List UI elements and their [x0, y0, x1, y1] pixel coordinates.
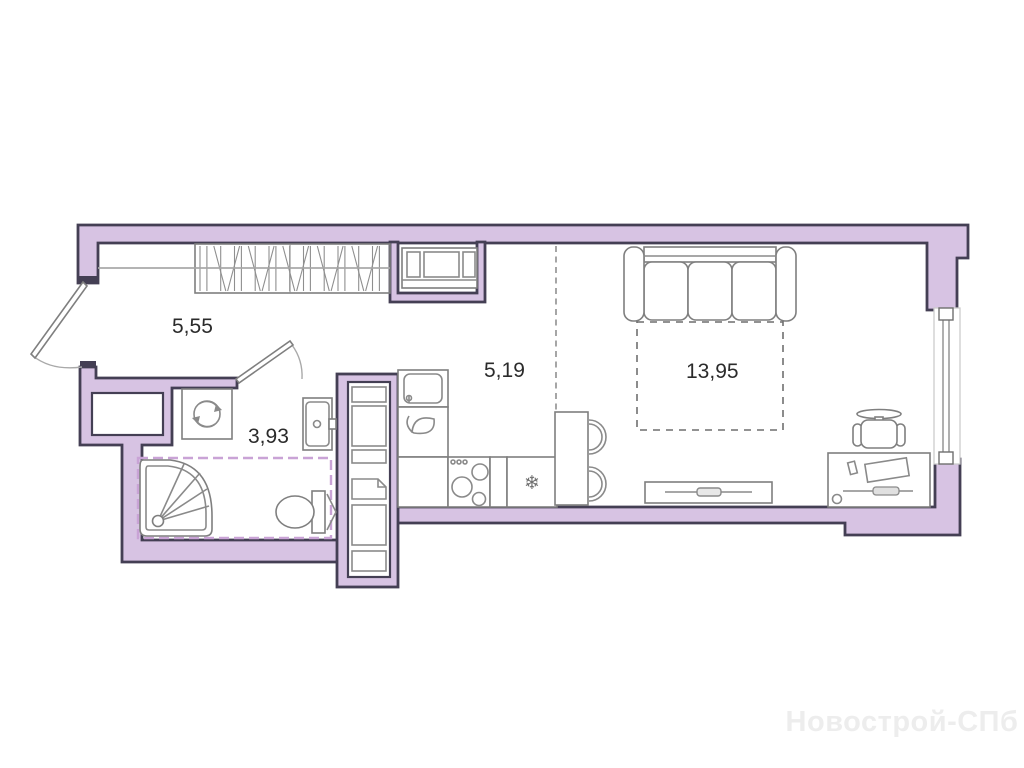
washing-machine: [182, 389, 232, 439]
kitchen-unit-divider: [490, 457, 507, 507]
floor-plan: ❄: [0, 0, 1024, 768]
kitchen-counter: [398, 407, 448, 507]
desk: [828, 453, 930, 507]
wardrobe: [98, 244, 390, 293]
window-sill-bottom: [939, 452, 953, 464]
door-leaf: [31, 282, 87, 358]
window: [934, 308, 960, 464]
area-label-kitchen: 5,19: [484, 359, 525, 382]
kitchen-sink: [398, 370, 448, 407]
tv-stand: [645, 482, 772, 503]
area-label-living: 13,95: [686, 360, 739, 383]
shower: [140, 460, 212, 536]
door-swing-arc: [292, 345, 302, 379]
door-leaf: [236, 341, 293, 383]
fridge: ❄: [507, 457, 557, 507]
stove: [448, 457, 490, 507]
door-frame-cap-bottom: [80, 361, 96, 368]
shaft-opening: [92, 393, 163, 435]
snowflake-icon: ❄: [524, 472, 540, 494]
door-swing-arc: [33, 356, 82, 368]
bathroom-sink: [303, 398, 336, 450]
entrance-door: [31, 282, 87, 368]
shelf-niche-unit: [402, 248, 477, 288]
area-label-hallway: 5,55: [172, 315, 213, 338]
bathroom-door: [236, 341, 302, 383]
bar-counter: [555, 412, 588, 505]
office-chair: [853, 410, 905, 449]
sofa: [624, 247, 796, 321]
bar-stools: [589, 420, 606, 501]
toilet: [276, 491, 336, 533]
watermark: Новострой-СПб: [786, 706, 1019, 738]
door-frame-cap-top: [78, 276, 98, 284]
window-sill-top: [939, 308, 953, 320]
area-label-bathroom: 3,93: [248, 425, 289, 448]
